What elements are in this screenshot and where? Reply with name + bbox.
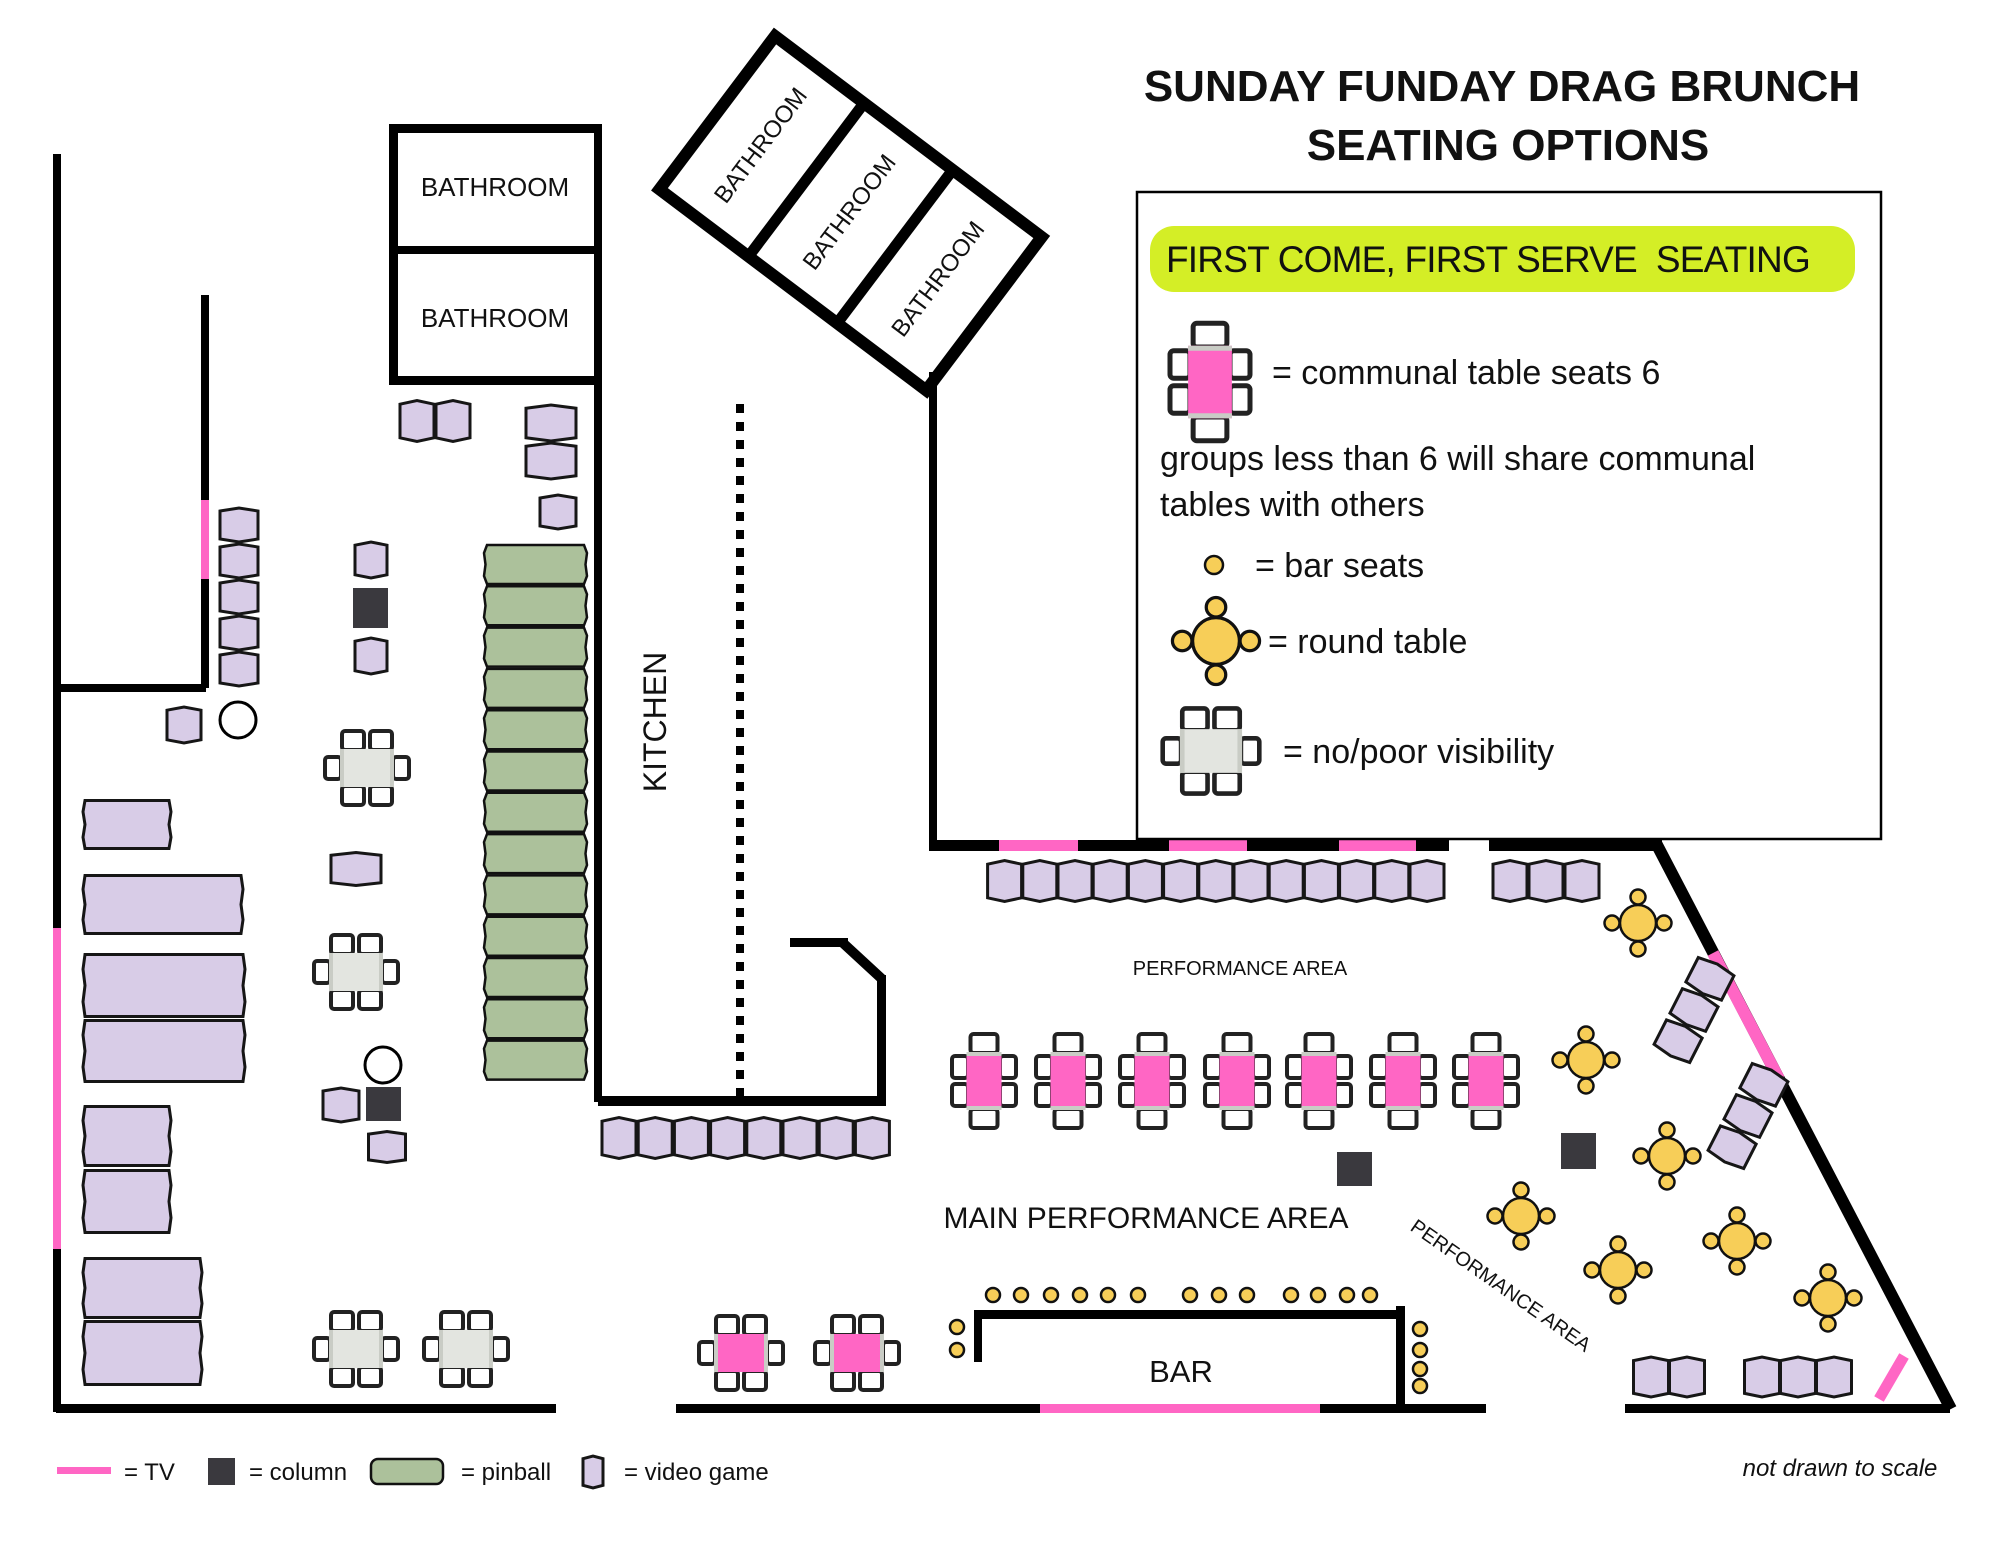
svg-text:BAR: BAR bbox=[1149, 1354, 1213, 1389]
svg-text:not drawn to scale: not drawn to scale bbox=[1743, 1455, 1938, 1482]
svg-text:KITCHEN: KITCHEN bbox=[637, 652, 673, 792]
svg-text:MAIN PERFORMANCE AREA: MAIN PERFORMANCE AREA bbox=[943, 1202, 1348, 1235]
svg-text:= bar seats: = bar seats bbox=[1255, 547, 1424, 585]
svg-text:BATHROOM: BATHROOM bbox=[421, 303, 569, 333]
svg-text:= video game: = video game bbox=[624, 1459, 769, 1486]
svg-text:FIRST COME, FIRST SERVE SEATI: FIRST COME, FIRST SERVE SEATING bbox=[1166, 239, 1810, 280]
svg-text:BATHROOM: BATHROOM bbox=[421, 172, 569, 202]
svg-text:SEATING OPTIONS: SEATING OPTIONS bbox=[1307, 121, 1710, 170]
svg-text:PERFORMANCE AREA: PERFORMANCE AREA bbox=[1133, 958, 1348, 980]
svg-text:= pinball: = pinball bbox=[461, 1459, 551, 1486]
svg-text:= column: = column bbox=[249, 1459, 347, 1486]
svg-text:SUNDAY FUNDAY DRAG BRUNCH: SUNDAY FUNDAY DRAG BRUNCH bbox=[1144, 62, 1860, 111]
svg-text:tables with others: tables with others bbox=[1160, 486, 1425, 524]
svg-text:PERFORMANCE AREA: PERFORMANCE AREA bbox=[1406, 1216, 1595, 1357]
svg-text:= communal table seats 6: = communal table seats 6 bbox=[1272, 354, 1660, 392]
svg-text:= no/poor visibility: = no/poor visibility bbox=[1283, 733, 1554, 771]
svg-text:= round table: = round table bbox=[1268, 623, 1467, 661]
svg-text:= TV: = TV bbox=[124, 1459, 175, 1486]
svg-text:groups less than 6 will share: groups less than 6 will share communal bbox=[1160, 440, 1755, 478]
